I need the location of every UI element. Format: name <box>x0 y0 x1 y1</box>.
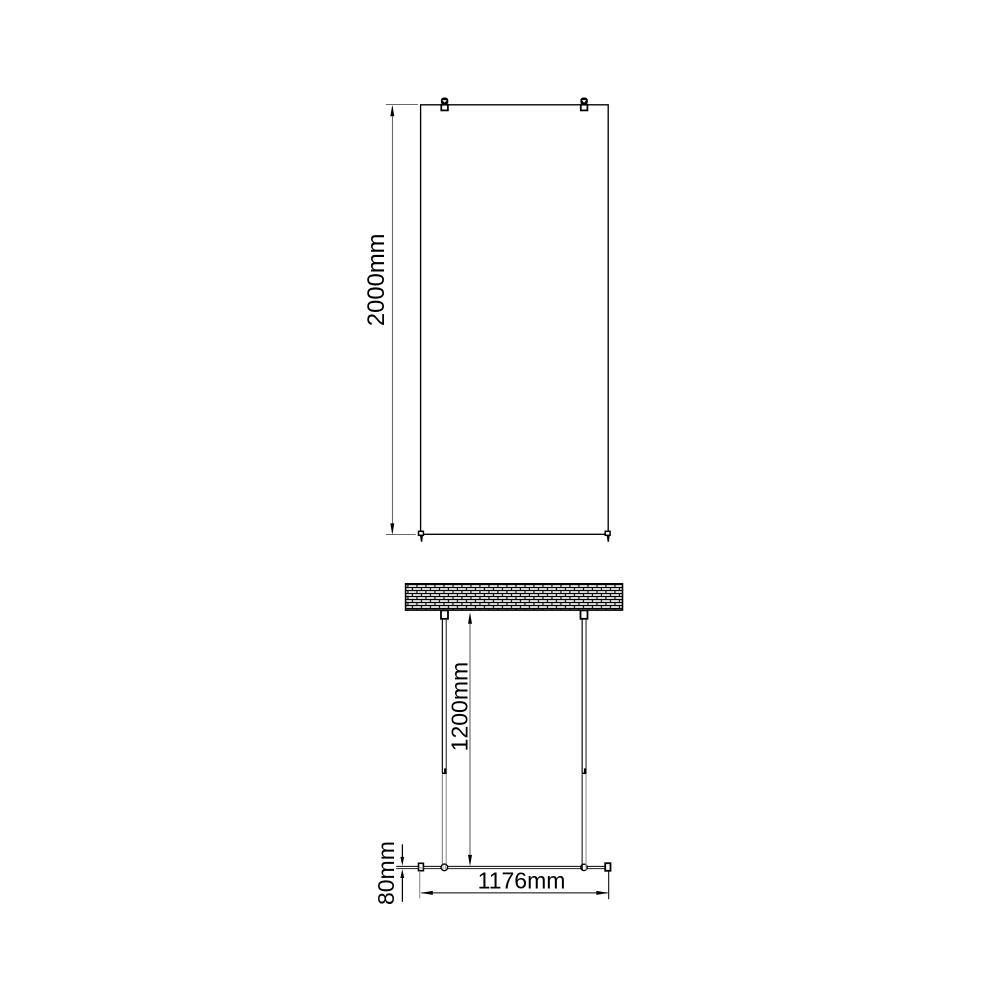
svg-text:1176mm: 1176mm <box>478 867 566 893</box>
svg-text:1200mm: 1200mm <box>446 662 472 751</box>
svg-text:80mm: 80mm <box>373 841 399 905</box>
svg-text:2000mm: 2000mm <box>363 234 390 327</box>
